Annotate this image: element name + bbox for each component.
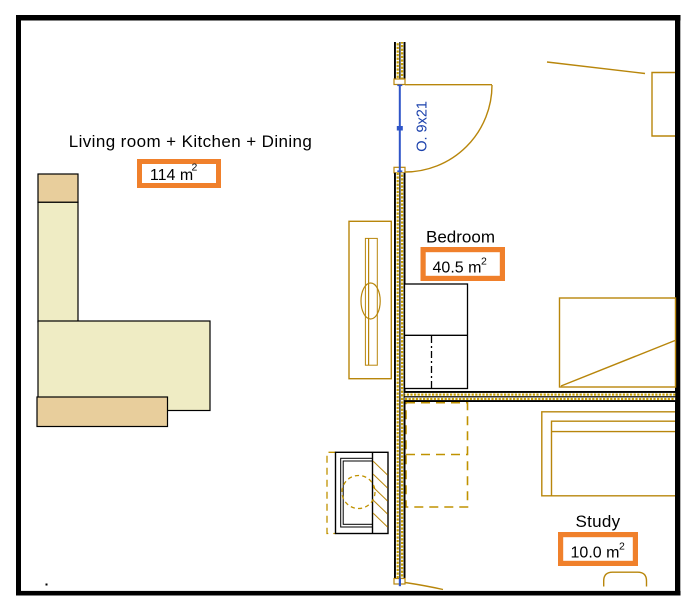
svg-text:Bedroom: Bedroom bbox=[426, 228, 495, 247]
svg-text:114 m: 114 m bbox=[150, 167, 193, 184]
svg-text:2: 2 bbox=[481, 256, 487, 268]
svg-text:2: 2 bbox=[192, 162, 198, 174]
svg-text:40.5 m: 40.5 m bbox=[433, 260, 482, 277]
svg-text:Study: Study bbox=[576, 512, 621, 531]
svg-text:Living room + Kitchen + Dining: Living room + Kitchen + Dining bbox=[69, 132, 313, 151]
svg-text:O. 9x21: O. 9x21 bbox=[415, 101, 431, 152]
svg-text:10.0 m: 10.0 m bbox=[571, 544, 620, 561]
svg-text:2: 2 bbox=[619, 540, 625, 552]
